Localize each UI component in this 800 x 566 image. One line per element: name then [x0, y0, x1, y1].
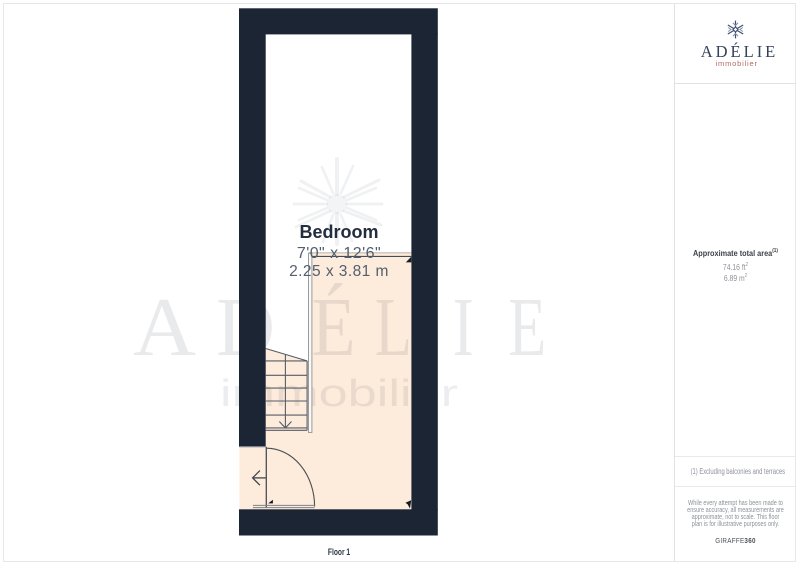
svg-text:É: É — [312, 281, 356, 374]
svg-text:E: E — [508, 281, 546, 374]
svg-text:A: A — [133, 281, 196, 374]
svg-text:I: I — [453, 281, 474, 374]
svg-text:L: L — [375, 281, 412, 374]
